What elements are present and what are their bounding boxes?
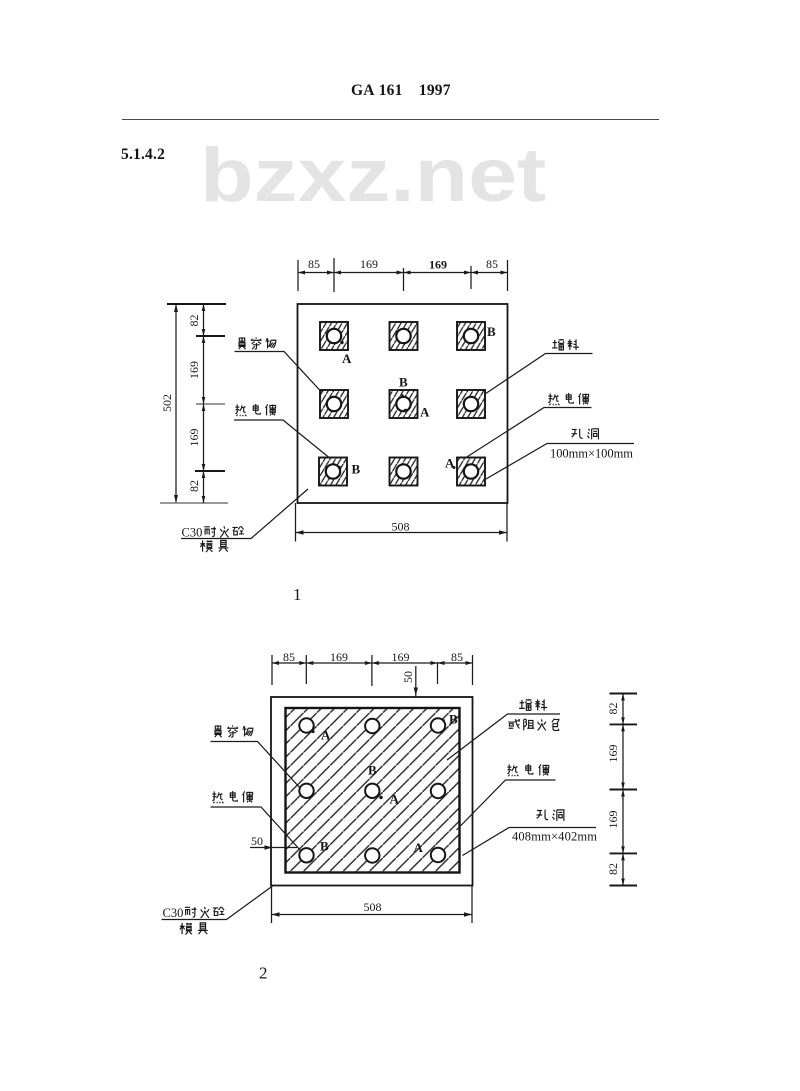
svg-text:B: B — [368, 763, 377, 778]
svg-text:A: A — [420, 405, 430, 420]
svg-text:B: B — [487, 324, 496, 339]
svg-text:85: 85 — [283, 650, 295, 664]
svg-text:508: 508 — [392, 520, 410, 534]
svg-text:A: A — [390, 792, 400, 807]
svg-text:169: 169 — [187, 429, 201, 447]
svg-text:169: 169 — [429, 258, 447, 272]
svg-text:100mm×100mm: 100mm×100mm — [550, 447, 633, 461]
svg-text:A: A — [414, 840, 424, 855]
svg-text:169: 169 — [360, 257, 378, 271]
svg-text:1: 1 — [293, 585, 302, 604]
svg-text:508: 508 — [364, 900, 382, 914]
svg-text:82: 82 — [187, 480, 201, 492]
svg-text:502: 502 — [160, 394, 174, 412]
svg-text:C30: C30 — [163, 906, 184, 920]
svg-text:B: B — [320, 839, 329, 854]
svg-text:408mm×402mm: 408mm×402mm — [512, 830, 597, 844]
svg-text:85: 85 — [451, 650, 463, 664]
svg-text:169: 169 — [392, 650, 410, 664]
svg-text:C30: C30 — [182, 526, 203, 540]
svg-text:82: 82 — [606, 863, 620, 875]
svg-text:82: 82 — [187, 315, 201, 327]
svg-text:B: B — [352, 462, 361, 477]
svg-text:85: 85 — [486, 257, 498, 271]
svg-text:B: B — [449, 712, 458, 727]
svg-text:B: B — [399, 375, 408, 390]
svg-text:A: A — [321, 728, 331, 743]
svg-text:169: 169 — [187, 361, 201, 379]
svg-text:169: 169 — [330, 650, 348, 664]
svg-text:169: 169 — [606, 745, 620, 763]
svg-text:85: 85 — [308, 257, 320, 271]
svg-text:2: 2 — [259, 964, 268, 983]
svg-text:50: 50 — [401, 671, 415, 683]
svg-text:50: 50 — [251, 834, 263, 848]
svg-text:A: A — [342, 351, 352, 366]
svg-text:82: 82 — [606, 703, 620, 715]
svg-text:169: 169 — [606, 811, 620, 829]
